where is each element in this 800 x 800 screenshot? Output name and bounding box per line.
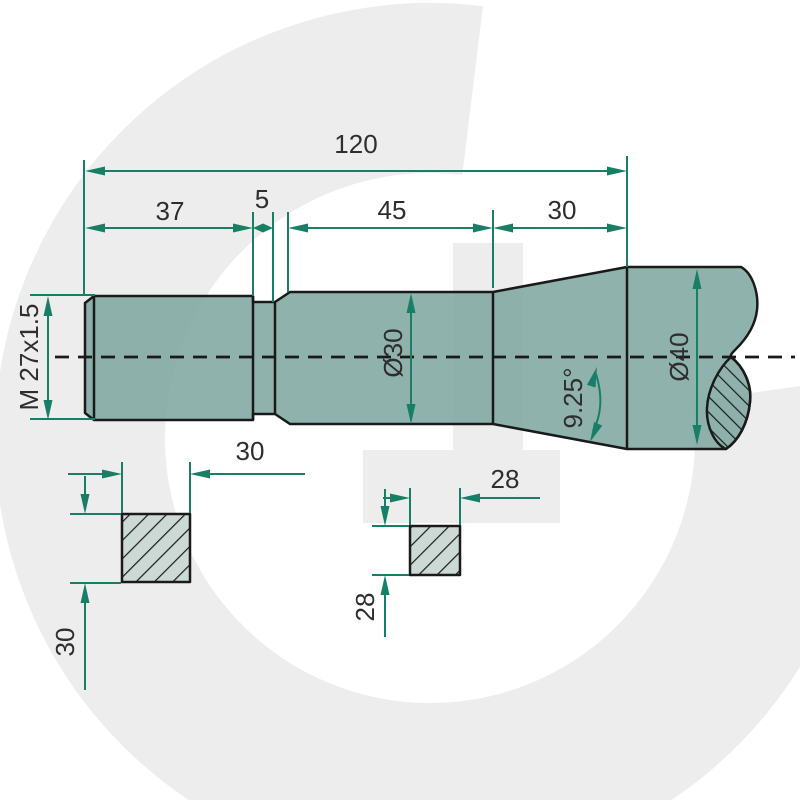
shaft-diagram: 120 37 5 45 30 M 27x1.5 Ø30 Ø40 9.25° 30… [0, 0, 800, 800]
label-square28-width: 28 [491, 464, 520, 494]
technical-drawing-page: 120 37 5 45 30 M 27x1.5 Ø30 Ø40 9.25° 30… [0, 0, 800, 800]
label-square28-height: 28 [350, 593, 380, 622]
label-mid-length: 45 [378, 195, 407, 225]
square-section-28 [410, 526, 460, 575]
label-end-length: 30 [548, 195, 577, 225]
label-thread-length: 37 [156, 196, 185, 226]
watermark-bar [363, 450, 560, 523]
square28-hatch [410, 526, 460, 575]
label-total-length: 120 [334, 129, 377, 159]
label-square30-height: 30 [50, 628, 80, 657]
label-groove-width: 5 [255, 184, 269, 214]
label-thread-spec: M 27x1.5 [14, 304, 44, 411]
label-taper-angle: 9.25° [558, 367, 588, 428]
label-mid-diameter: Ø30 [378, 328, 408, 377]
label-end-diameter: Ø40 [664, 332, 694, 381]
label-square30-width: 30 [236, 436, 265, 466]
square-section-30 [122, 514, 190, 582]
square30-hatch [122, 514, 190, 582]
